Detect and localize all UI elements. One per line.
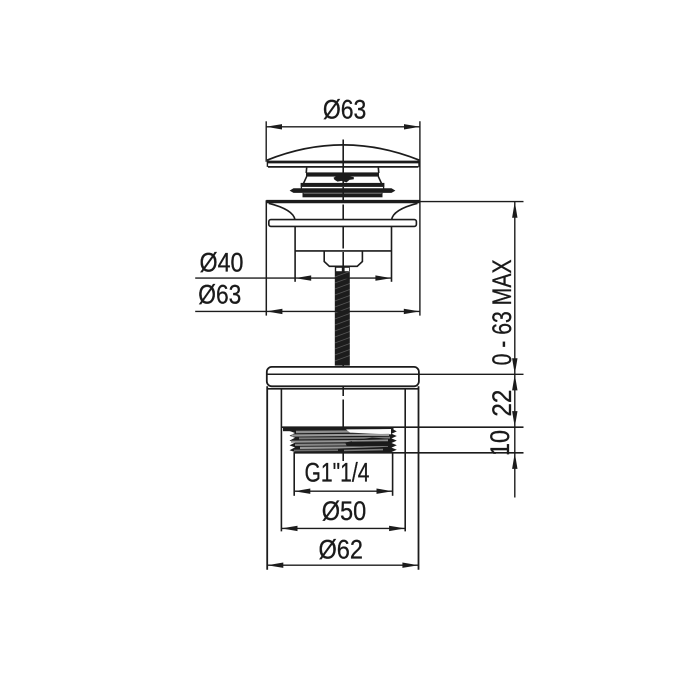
svg-text:Ø50: Ø50 — [322, 496, 367, 526]
svg-text:0 - 63 MAX: 0 - 63 MAX — [487, 259, 517, 365]
svg-text:Ø63: Ø63 — [198, 279, 241, 309]
svg-text:10: 10 — [485, 430, 515, 456]
svg-text:22: 22 — [487, 390, 517, 417]
svg-text:Ø40: Ø40 — [200, 248, 244, 278]
svg-text:Ø63: Ø63 — [323, 95, 367, 125]
svg-text:Ø62: Ø62 — [318, 535, 363, 565]
svg-text:G1"1/4: G1"1/4 — [305, 457, 370, 487]
